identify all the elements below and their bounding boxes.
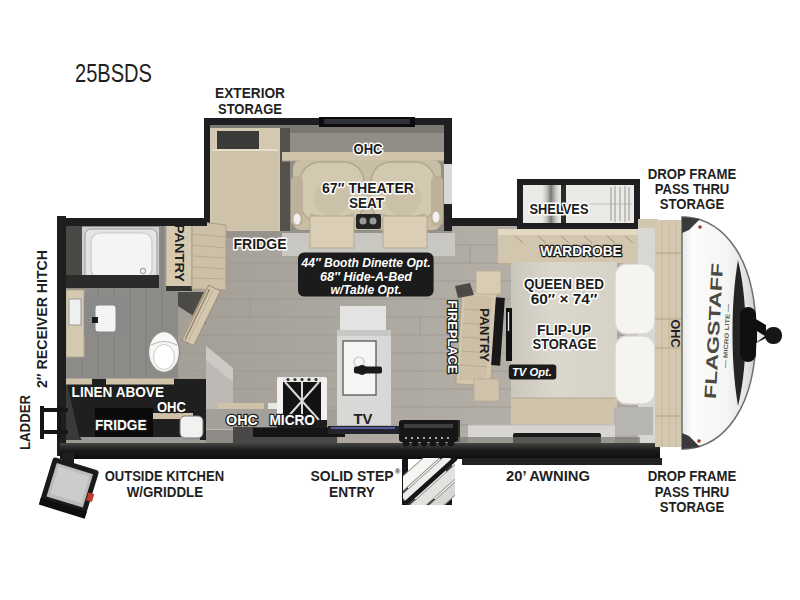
svg-text:PASS THRU: PASS THRU <box>655 484 730 500</box>
svg-text:W/GRIDDLE: W/GRIDDLE <box>127 484 204 500</box>
svg-text:®: ® <box>395 468 401 475</box>
svg-text:OHC: OHC <box>157 399 186 415</box>
svg-text:FLIP-UP: FLIP-UP <box>537 322 591 338</box>
svg-text:25BSDS: 25BSDS <box>75 59 152 87</box>
svg-text:PANTRY: PANTRY <box>172 224 186 283</box>
svg-text:STORAGE: STORAGE <box>660 499 725 515</box>
svg-text:w/Table Opt.: w/Table Opt. <box>331 283 402 297</box>
svg-text:PASS THRU: PASS THRU <box>655 181 730 197</box>
svg-text:FRIDGE: FRIDGE <box>234 235 287 252</box>
svg-text:OUTSIDE KITCHEN: OUTSIDE KITCHEN <box>105 468 225 484</box>
svg-text:OHC: OHC <box>668 320 683 348</box>
svg-text:TV: TV <box>354 411 374 427</box>
svg-text:20’ AWNING: 20’ AWNING <box>506 468 590 484</box>
svg-text:WARDROBE: WARDROBE <box>540 243 622 259</box>
svg-text:PANTRY: PANTRY <box>477 308 492 362</box>
svg-text:DROP FRAME: DROP FRAME <box>648 166 737 182</box>
svg-text:DROP FRAME: DROP FRAME <box>648 468 737 484</box>
svg-text:67″ THEATER: 67″ THEATER <box>322 180 415 196</box>
svg-text:60″ × 74″: 60″ × 74″ <box>531 291 598 307</box>
svg-text:LADDER: LADDER <box>17 395 33 450</box>
svg-text:OHC: OHC <box>354 141 383 157</box>
svg-text:SHELVES: SHELVES <box>530 201 589 217</box>
svg-text:ENTRY: ENTRY <box>329 484 376 500</box>
svg-text:STORAGE: STORAGE <box>218 100 282 117</box>
svg-text:STORAGE: STORAGE <box>532 336 596 352</box>
svg-text:STORAGE: STORAGE <box>660 196 725 212</box>
svg-text:MICRO: MICRO <box>270 412 315 428</box>
svg-text:FRIDGE: FRIDGE <box>95 417 147 433</box>
svg-text:68″ Hide-A-Bed: 68″ Hide-A-Bed <box>320 270 412 284</box>
svg-text:TV Opt.: TV Opt. <box>512 366 552 378</box>
svg-text:2″ RECEIVER HITCH: 2″ RECEIVER HITCH <box>34 250 50 388</box>
svg-text:EXTERIOR: EXTERIOR <box>215 84 285 101</box>
svg-text:SEAT: SEAT <box>349 195 384 211</box>
svg-text:SOLID STEP: SOLID STEP <box>311 468 394 484</box>
svg-text:FIREPLACE: FIREPLACE <box>445 301 460 374</box>
svg-text:OHC: OHC <box>226 412 258 428</box>
svg-text:44″ Booth Dinette Opt.: 44″ Booth Dinette Opt. <box>301 256 431 270</box>
svg-text:LINEN ABOVE: LINEN ABOVE <box>72 384 164 400</box>
